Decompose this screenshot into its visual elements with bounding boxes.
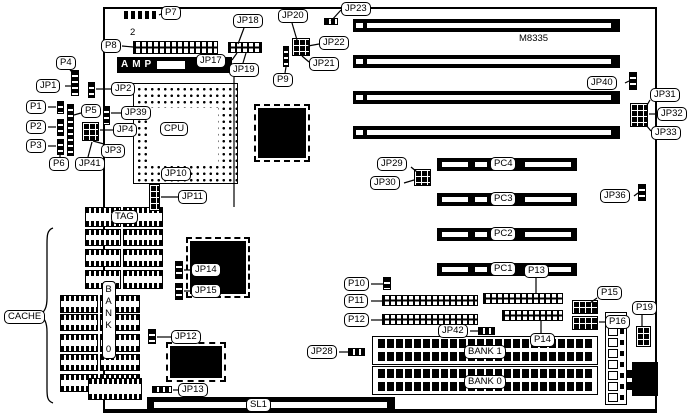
label-pin2: 2 [130,27,135,38]
callout-jp12: JP12 [171,330,201,344]
simm-bank-label: BANK 1 [464,345,506,359]
callout-p7: P7 [161,6,181,20]
pci-slot-label-pc3: PC3 [490,192,516,206]
pin-strip [71,70,79,96]
keyboard-connector-tab [626,370,633,378]
callout-p16: P16 [605,315,630,329]
callout-p19: P19 [632,301,657,315]
callout-jp3: JP3 [101,144,125,158]
callout-p6: P6 [49,157,69,171]
power-pin [620,373,624,378]
qfp-chip [258,108,306,158]
pin-strip [175,283,183,300]
power-pin [608,338,618,347]
cache-dip-chip [123,229,163,246]
cache-dip-chip [85,229,121,246]
sl1-slot [147,397,395,412]
callout-jp21: JP21 [309,57,339,71]
isa-slot-contacts [367,23,611,28]
callout-jp18: JP18 [233,14,263,28]
callout-p12: P12 [344,313,369,327]
callout-jp42: JP42 [438,324,468,338]
label-model: M8335 [519,33,548,44]
simm-bank-label: BANK 0 [464,375,506,389]
keyboard-connector-tab [626,382,633,390]
cache-dip-chip [123,270,163,289]
pin-header [483,293,563,304]
callout-jp39: JP39 [121,106,151,120]
isa-slot [353,55,620,68]
callout-jp10: JP10 [161,167,191,181]
pci-stripe [525,197,571,202]
pin-strip [348,348,365,356]
cache-dip-chip [85,249,121,267]
pin-strip [152,386,172,393]
jumper-block [292,38,310,56]
pin-strip [629,72,637,90]
pin-strip [148,329,156,344]
callout-jp13: JP13 [178,383,208,397]
pci-stripe [442,197,468,202]
pin-strip [57,101,64,114]
power-pin [620,340,624,345]
callout-jp15: JP15 [191,284,221,298]
cache-dip-chip [60,334,98,352]
callout-jp1: JP1 [36,79,60,93]
jumper-block [630,103,648,127]
callout-p8: P8 [101,39,121,53]
label-sl1: SL1 [246,398,271,412]
isa-slot-key [356,130,363,135]
callout-p13: P13 [524,264,549,278]
callout-jp20: JP20 [278,9,308,23]
label-bank0-vertical: BANK 0 [102,281,116,359]
power-pin [620,395,624,400]
pin-strip [283,46,289,67]
callout-jp33: JP33 [651,126,681,140]
callout-jp22: JP22 [319,36,349,50]
callout-jp14: JP14 [191,263,221,277]
jumper-block [149,184,160,211]
label-tag: TAG [111,210,138,224]
callout-p3: P3 [26,139,46,153]
callout-jp11: JP11 [178,190,207,204]
callout-p5: P5 [81,104,101,118]
pci-stripe [525,232,571,237]
pci-stripe [475,197,487,202]
callout-jp19: JP19 [229,63,259,77]
callout-p15: P15 [597,286,622,300]
cache-dip-chip [60,314,98,331]
callout-jp17: JP17 [196,54,226,68]
power-pin [608,393,618,402]
pin-header [228,42,262,53]
callout-jp30: JP30 [370,176,400,190]
callout-p14: P14 [530,333,555,347]
power-pin [620,329,624,334]
power-pin [620,384,624,389]
pci-slot-label-pc1: PC1 [490,262,516,276]
power-pin [608,371,618,380]
jumper-block [414,169,431,186]
amp-connector-window [157,61,185,69]
power-pin [620,362,624,367]
pin-strip [88,82,95,98]
pin-strip [103,106,110,125]
isa-slot-contacts [367,59,611,64]
callout-p2: P2 [26,120,46,134]
cache-dip-chip [60,295,98,313]
pci-stripe [442,232,468,237]
cache-dip-chip [123,249,163,267]
callout-jp29: JP29 [377,157,407,171]
pin-strip [324,18,338,25]
callout-jp32: JP32 [657,107,687,121]
pin-header [133,41,218,54]
callout-jp31: JP31 [650,88,680,102]
pin-strip [638,184,646,201]
pin-strip [57,119,64,136]
keyboard-connector [632,362,658,396]
callout-jp28: JP28 [307,345,337,359]
cache-dip-chip [60,354,98,371]
callout-jp4: JP4 [113,123,137,137]
isa-slot-key [356,23,363,28]
power-pin [608,349,618,358]
jumper-block [572,316,598,330]
pci-stripe [475,162,487,167]
pin-header [382,295,478,306]
leader-line [88,142,92,157]
pin-strip [124,11,159,19]
jumper-block [572,300,598,314]
power-pin [620,351,624,356]
power-pin [608,382,618,391]
pin-strip [478,327,495,335]
pci-slot-label-pc4: PC4 [490,157,516,171]
callout-jp41: JP41 [75,157,105,171]
power-pin [608,360,618,369]
callout-jp23: JP23 [341,2,371,16]
callout-p10: P10 [344,277,369,291]
pci-slot-label-pc2: PC2 [490,227,516,241]
pci-stripe [475,232,487,237]
label-cpu: CPU [160,122,188,136]
isa-slot-key [356,59,363,64]
pin-strip [67,104,74,156]
callout-p11: P11 [344,294,368,308]
callout-jp2: JP2 [111,82,135,96]
qfp-chip [170,346,222,378]
isa-slot-contacts [367,95,611,100]
pci-stripe [475,267,487,272]
pin-strip [383,277,391,290]
pin-header [502,310,563,321]
callout-jp36: JP36 [600,189,630,203]
pci-stripe [525,162,571,167]
isa-slot-key [356,95,363,100]
leader-line [74,113,81,115]
label-amp: AMP [121,59,155,71]
pci-stripe [442,267,468,272]
isa-slot [353,126,620,139]
callout-p4: P4 [56,56,76,70]
pin-strip [57,139,64,155]
jumper-block [636,326,651,347]
isa-slot [353,91,620,104]
label-cache: CACHE [4,310,45,324]
isa-slot-contacts [367,130,611,135]
motherboard-diagram: PC4PC3PC2PC1BANK 1BANK 0P7JP18JP20JP23P8… [0,0,696,420]
pci-stripe [442,162,468,167]
callout-p9: P9 [273,73,293,87]
jumper-block [82,122,99,141]
pin-strip [175,261,183,279]
isa-slot [353,19,620,32]
callout-jp40: JP40 [587,76,617,90]
dip-chip [88,378,142,400]
callout-p1: P1 [26,100,46,114]
